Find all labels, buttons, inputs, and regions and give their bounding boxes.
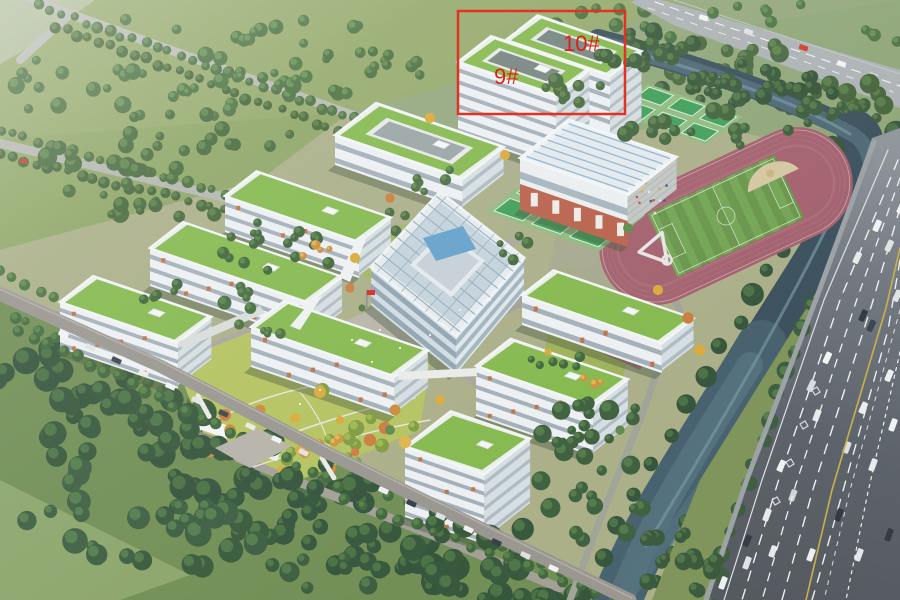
svg-text:10#: 10# bbox=[563, 31, 600, 56]
svg-text:9#: 9# bbox=[494, 64, 519, 89]
